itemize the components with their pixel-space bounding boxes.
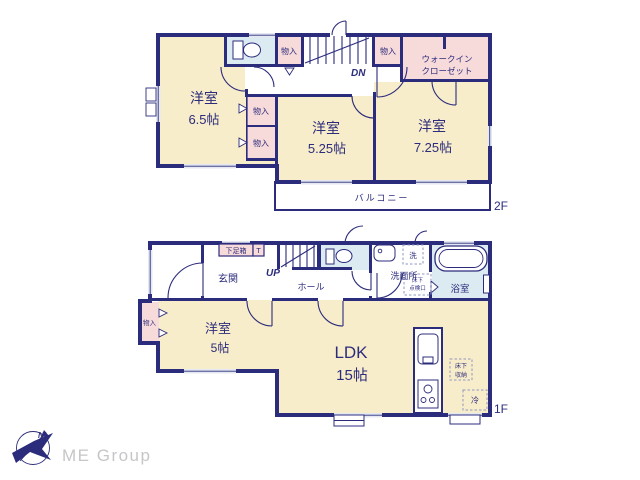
label-ldk-size: 15帖	[336, 367, 368, 384]
label-laundry: 洗	[409, 250, 417, 260]
label-fridge: 冷	[471, 395, 479, 405]
label-closet-mid-upper: 物入	[253, 106, 269, 116]
compass-north-label: N	[38, 431, 44, 440]
label-hall: ホール	[297, 282, 324, 292]
label-floor-storage-line1: 床下	[455, 362, 467, 370]
label-2f-bedroom-b-size: 5.25帖	[308, 141, 346, 156]
company-name: ME Group	[62, 446, 151, 465]
stove-icon	[418, 380, 438, 408]
label-floor-1f: 1F	[494, 402, 508, 416]
label-1f-bedroom-name: 洋室	[205, 321, 231, 336]
label-balcony: バルコニー	[355, 193, 410, 203]
label-1f-bedroom-size: 5帖	[211, 340, 230, 355]
label-shoe-box-t: T	[256, 246, 261, 255]
label-hatch-line2: 点検口	[409, 284, 426, 292]
label-shoe-box: 下足箱	[226, 246, 247, 255]
floorplan-drawing: 洋室 6.5帖 洋室 5.25帖 洋室 7.25帖 ウォークイン クローゼット …	[0, 0, 640, 480]
compass-bird-icon	[12, 433, 53, 463]
label-ldk-name: LDK	[334, 343, 368, 362]
label-2f-bedroom-b-name: 洋室	[312, 120, 340, 136]
label-entrance: 玄関	[218, 272, 238, 285]
label-2f-bedroom-a-size: 6.5帖	[188, 112, 219, 127]
label-2f-bedroom-c-name: 洋室	[418, 118, 446, 134]
label-wic-line2: クローゼット	[421, 66, 472, 76]
label-hatch-line1: 床下	[412, 276, 424, 284]
sink-icon	[374, 245, 395, 261]
label-floor-2f: 2F	[494, 199, 508, 213]
label-closet-top-left: 物入	[281, 46, 297, 56]
label-wic-line1: ウォークイン	[421, 54, 472, 64]
room-1f-ldk	[275, 300, 490, 415]
label-closet-mid-lower: 物入	[253, 138, 269, 148]
floorplan-1f: 玄関 下足箱 T UP ホール 洗 洗面所 床下 点検口 浴室 物入 洋室 5帖…	[140, 226, 508, 426]
label-floor-storage-line2: 収納	[455, 371, 467, 379]
label-closet-1f: 物入	[143, 318, 157, 327]
label-2f-bedroom-a-name: 洋室	[190, 90, 218, 106]
kitchen-counter	[414, 328, 442, 413]
label-2f-bedroom-c-size: 7.25帖	[414, 140, 452, 155]
label-stairs-dn: DN	[351, 68, 366, 79]
room-2f-bedroom-5-25	[277, 96, 377, 182]
label-closet-top-right: 物入	[380, 46, 396, 56]
company-logo: N ME Group	[12, 430, 151, 465]
floorplan-page: 洋室 6.5帖 洋室 5.25帖 洋室 7.25帖 ウォークイン クローゼット …	[0, 0, 640, 480]
label-bath: 浴室	[450, 283, 469, 295]
label-stairs-up: UP	[266, 268, 280, 279]
floorplan-2f: 洋室 6.5帖 洋室 5.25帖 洋室 7.25帖 ウォークイン クローゼット …	[146, 21, 508, 213]
